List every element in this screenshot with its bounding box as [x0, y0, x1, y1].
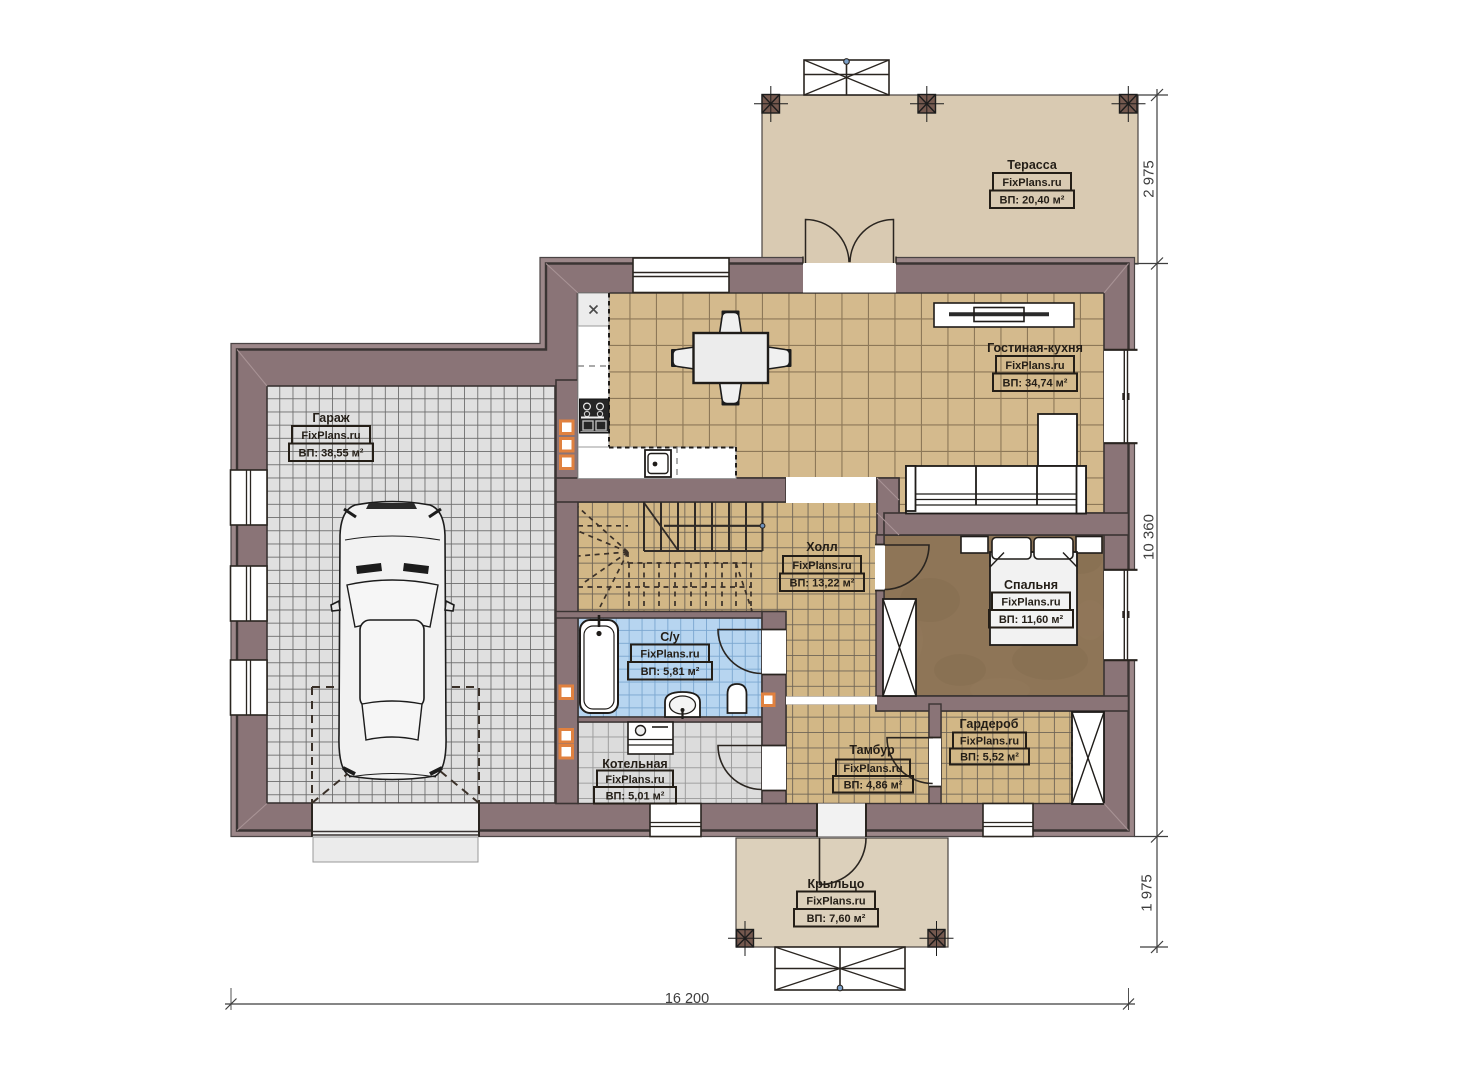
svg-text:ВП: 13,22 м²: ВП: 13,22 м²: [790, 578, 855, 590]
svg-text:10 360: 10 360: [1141, 514, 1158, 560]
svg-text:Гардероб: Гардероб: [959, 717, 1018, 731]
svg-text:FixPlans.ru: FixPlans.ru: [301, 430, 360, 442]
svg-text:FixPlans.ru: FixPlans.ru: [792, 560, 851, 572]
svg-text:FixPlans.ru: FixPlans.ru: [843, 763, 902, 775]
svg-text:ВП: 5,81 м²: ВП: 5,81 м²: [641, 666, 700, 678]
svg-text:Тамбур: Тамбур: [849, 743, 895, 757]
svg-text:1 975: 1 975: [1139, 874, 1156, 912]
svg-text:ВП: 4,86 м²: ВП: 4,86 м²: [844, 780, 903, 792]
svg-text:FixPlans.ru: FixPlans.ru: [1001, 597, 1060, 609]
svg-text:ВП: 20,40 м²: ВП: 20,40 м²: [1000, 195, 1065, 207]
svg-text:FixPlans.ru: FixPlans.ru: [960, 736, 1019, 748]
svg-text:Гостиная-кухня: Гостиная-кухня: [987, 341, 1083, 355]
svg-text:Спальня: Спальня: [1004, 578, 1058, 592]
svg-text:Котельная: Котельная: [602, 757, 667, 771]
svg-text:ВП: 34,74 м²: ВП: 34,74 м²: [1003, 378, 1068, 390]
svg-text:ВП: 7,60 м²: ВП: 7,60 м²: [807, 913, 866, 925]
svg-text:ВП: 11,60 м²: ВП: 11,60 м²: [999, 614, 1064, 626]
svg-text:Холл: Холл: [806, 540, 837, 554]
svg-text:FixPlans.ru: FixPlans.ru: [1005, 360, 1064, 372]
svg-text:Крыльцо: Крыльцо: [808, 877, 865, 891]
svg-text:FixPlans.ru: FixPlans.ru: [640, 649, 699, 661]
svg-text:С/у: С/у: [660, 630, 680, 644]
svg-text:FixPlans.ru: FixPlans.ru: [806, 896, 865, 908]
svg-text:2 975: 2 975: [1141, 160, 1158, 198]
svg-text:Гараж: Гараж: [312, 411, 349, 425]
svg-text:ВП: 38,55 м²: ВП: 38,55 м²: [299, 448, 364, 460]
svg-text:16 200: 16 200: [665, 991, 709, 1007]
svg-text:FixPlans.ru: FixPlans.ru: [1002, 177, 1061, 189]
svg-text:ВП: 5,52 м²: ВП: 5,52 м²: [960, 752, 1019, 764]
svg-text:ВП: 5,01 м²: ВП: 5,01 м²: [606, 791, 665, 803]
svg-text:FixPlans.ru: FixPlans.ru: [605, 774, 664, 786]
svg-text:Терасса: Терасса: [1007, 158, 1058, 172]
